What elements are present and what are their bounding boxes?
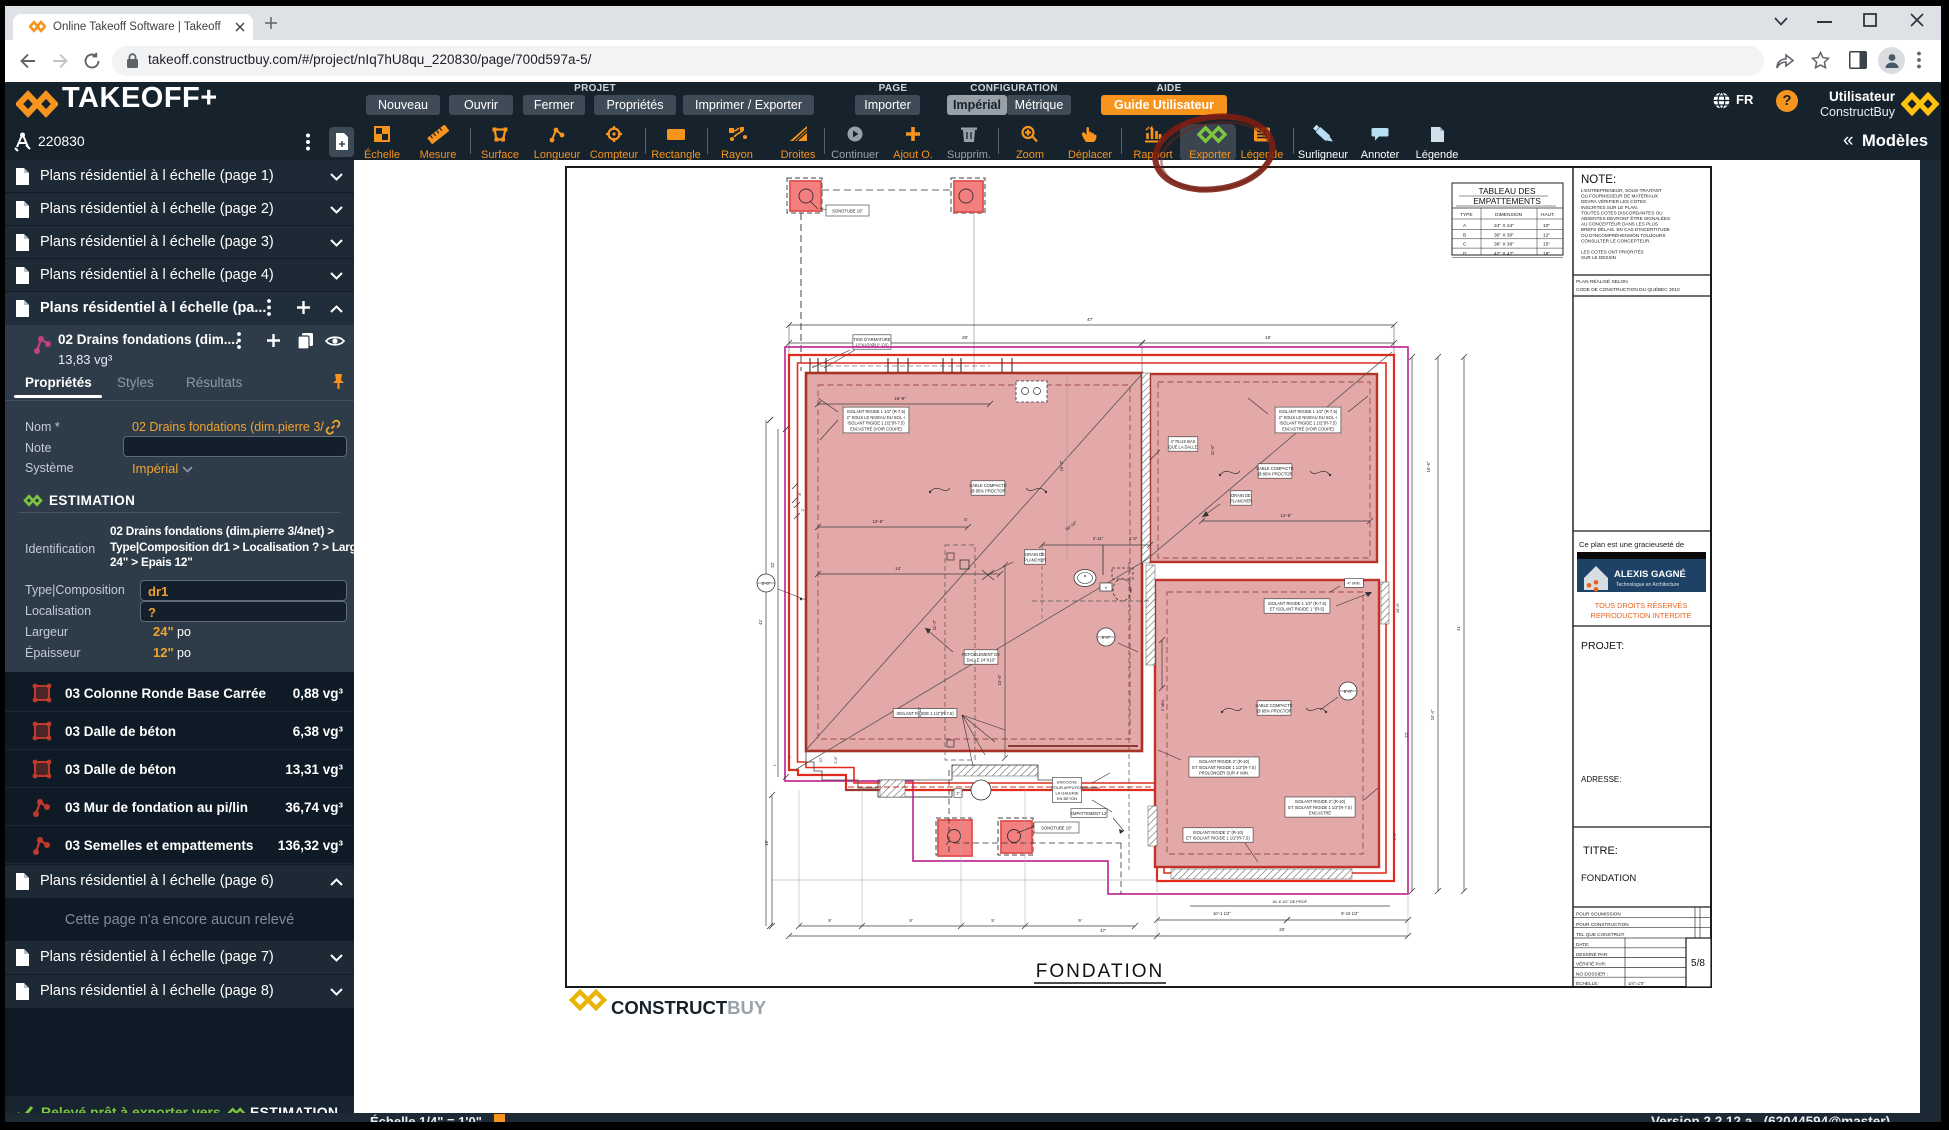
svg-text:13’-5": 13’-5" xyxy=(872,519,884,524)
svg-text:30" X 30": 30" X 30" xyxy=(1494,232,1514,238)
svg-text:5’-0": 5’-0" xyxy=(1344,689,1353,694)
svg-text:TOUS DROITS RÉSERVÉS: TOUS DROITS RÉSERVÉS xyxy=(1595,601,1688,610)
svg-text:ET ISOLANT RIGIDE 1 1/2"(R-7.5: ET ISOLANT RIGIDE 1 1/2"(R-7.5) xyxy=(1288,805,1352,810)
svg-text:10’-1 1/2": 10’-1 1/2" xyxy=(1213,911,1231,916)
svg-text:2' MIN.: 2' MIN. xyxy=(1160,699,1165,712)
svg-text:LES COTES ONT PRIORITÉS: LES COTES ONT PRIORITÉS xyxy=(1581,249,1644,255)
svg-text:VÉRIFIÉ PAR:: VÉRIFIÉ PAR: xyxy=(1576,961,1606,967)
svg-text:@ 95% PROCTOR: @ 95% PROCTOR xyxy=(1257,472,1292,477)
svg-text:16’-9": 16’-9" xyxy=(894,396,906,401)
svg-text:DATE:: DATE: xyxy=(1576,942,1589,947)
svg-text:36" X 36": 36" X 36" xyxy=(1494,242,1514,248)
svg-text:TOUTES COTES DISCORDANTES OU: TOUTES COTES DISCORDANTES OU xyxy=(1581,210,1663,215)
svg-text:LA GALERIE: LA GALERIE xyxy=(1055,791,1078,796)
svg-text:18": 18" xyxy=(1543,251,1550,257)
svg-text:ISOLANT RIGIDE 1 1/2" (R-7.5): ISOLANT RIGIDE 1 1/2" (R-7.5) xyxy=(1268,601,1327,606)
svg-text:CODE DE CONSTRUCTION DU QUÉBEC: CODE DE CONSTRUCTION DU QUÉBEC 2010 xyxy=(1576,286,1680,293)
svg-text:41': 41' xyxy=(1456,625,1461,631)
svg-text:D: D xyxy=(1463,251,1467,257)
svg-text:19': 19' xyxy=(1265,335,1271,340)
svg-text:28’-6": 28’-6" xyxy=(1395,602,1400,613)
svg-text:ISOLANT RIGIDE 1 1/2"(R-7.5): ISOLANT RIGIDE 1 1/2"(R-7.5) xyxy=(896,711,954,716)
svg-text:EMPATTEMENTS: EMPATTEMENTS xyxy=(1473,196,1541,206)
svg-text:15’-6": 15’-6" xyxy=(997,674,1002,685)
svg-text:ENCOCHE: ENCOCHE xyxy=(1057,779,1077,784)
svg-text:ISOLANT RIGIDE 1 1/2" (R-7.5): ISOLANT RIGIDE 1 1/2" (R-7.5) xyxy=(847,409,906,414)
svg-text:ABSENTES DEVRONT ÊTRE SIGNALÉE: ABSENTES DEVRONT ÊTRE SIGNALÉES xyxy=(1581,214,1670,221)
svg-text:SABLE COMPACTÉ: SABLE COMPACTÉ xyxy=(1255,703,1293,708)
svg-text:DALLE 24"X10": DALLE 24"X10" xyxy=(967,658,996,663)
svg-text:EN BÉTON: EN BÉTON xyxy=(1057,796,1077,801)
svg-text:2’-4": 2’-4" xyxy=(1392,831,1397,839)
svg-text:ISOLANT RIGIDE 2" (R-10): ISOLANT RIGIDE 2" (R-10) xyxy=(1193,830,1244,835)
svg-text:ENCASTRÉ: ENCASTRÉ xyxy=(1309,811,1332,816)
svg-text:4" MIN.: 4" MIN. xyxy=(1347,581,1360,586)
svg-text:14': 14' xyxy=(895,566,901,571)
svg-text:PLANCHER: PLANCHER xyxy=(1230,499,1252,504)
svg-text:16': 16' xyxy=(764,840,769,846)
svg-text:5’-0": 5’-0" xyxy=(1102,635,1111,640)
svg-text:POUR CONSTRUCTION: POUR CONSTRUCTION xyxy=(1576,922,1629,927)
svg-text:TITRE:: TITRE: xyxy=(1583,845,1618,857)
svg-text:OU FOURNISSEUR DE MATÉRIAUX: OU FOURNISSEUR DE MATÉRIAUX xyxy=(1581,193,1658,199)
svg-text:5': 5' xyxy=(991,918,994,923)
svg-text:EMPATTEMENT 12": EMPATTEMENT 12" xyxy=(1070,811,1108,816)
svg-text:9’-10 1/2": 9’-10 1/2" xyxy=(1341,911,1359,916)
svg-text:47': 47' xyxy=(1087,317,1093,322)
svg-text:16’-6": 16’-6" xyxy=(1426,461,1431,472)
svg-text:@ 95% PROCTOR: @ 95% PROCTOR xyxy=(970,489,1005,494)
svg-text:16’-6 1/2" DE PROF.: 16’-6 1/2" DE PROF. xyxy=(1272,899,1308,904)
svg-text:5’-11": 5’-11" xyxy=(917,706,922,717)
svg-text:ET ISOLANT RIGIDE 1 "(R-5): ET ISOLANT RIGIDE 1 "(R-5) xyxy=(1270,607,1325,612)
svg-text:32': 32' xyxy=(770,562,775,568)
svg-text:2': 2' xyxy=(800,508,805,511)
svg-text:NOTE:: NOTE: xyxy=(1581,174,1616,186)
svg-text:14’-9": 14’-9" xyxy=(1280,513,1292,518)
svg-text:ET ISOLANT RIGIDE 1 1/2"(R-7.5: ET ISOLANT RIGIDE 1 1/2"(R-7.5) xyxy=(1192,765,1256,770)
svg-text:1': 1' xyxy=(773,763,777,766)
svg-text:ISOLANT RIGIDE 2" (R-10): ISOLANT RIGIDE 2" (R-10) xyxy=(1199,759,1250,764)
svg-text:SONOTUBE 10": SONOTUBE 10" xyxy=(1041,826,1072,831)
svg-text:2’-11": 2’-11" xyxy=(1093,536,1104,541)
svg-text:2" SOUS LE NIVEAU DU SOL +: 2" SOUS LE NIVEAU DU SOL + xyxy=(847,415,906,420)
svg-text:DRAIN DE: DRAIN DE xyxy=(1231,493,1251,498)
svg-text:V: V xyxy=(1105,585,1108,590)
svg-text:ISOLANT RIGIDE 2" (R-10): ISOLANT RIGIDE 2" (R-10) xyxy=(1295,799,1346,804)
svg-text:2" SOUS LE NIVEAU DU SOL +: 2" SOUS LE NIVEAU DU SOL + xyxy=(1279,415,1338,420)
svg-text:POUR APPUYER: POUR APPUYER xyxy=(1051,785,1083,790)
svg-text:POUR SOUMISSION: POUR SOUMISSION xyxy=(1576,912,1621,917)
svg-text:9': 9' xyxy=(1078,918,1081,923)
svg-text:12": 12" xyxy=(1543,232,1550,238)
svg-text:47': 47' xyxy=(1100,928,1106,933)
svg-text:HAUT.: HAUT. xyxy=(1541,212,1555,218)
svg-text:@ 95% PROCTOR: @ 95% PROCTOR xyxy=(1256,709,1291,714)
svg-text:ISOLANT RIGIDE 1 1/2"(R-7.5): ISOLANT RIGIDE 1 1/2"(R-7.5) xyxy=(847,421,905,426)
svg-text:2'-6": 2'-6" xyxy=(834,756,838,764)
svg-text:PROLONGER SUR 4’ MIN.: PROLONGER SUR 4’ MIN. xyxy=(1199,771,1249,776)
svg-text:5’-0": 5’-0" xyxy=(762,581,771,586)
svg-text:ENCASTRÉ (VOIR COUPE): ENCASTRÉ (VOIR COUPE) xyxy=(1282,426,1334,431)
svg-text:41': 41' xyxy=(758,619,763,625)
svg-text:ADRESSE:: ADRESSE: xyxy=(1581,775,1621,784)
svg-text:DESSINÉ PAR:: DESSINÉ PAR: xyxy=(1576,951,1608,957)
svg-text:ENCASTRÉ (VOIR COUPE): ENCASTRÉ (VOIR COUPE) xyxy=(850,426,902,431)
svg-text:SONOTUBE 10": SONOTUBE 10" xyxy=(832,209,863,214)
svg-text:11’-6": 11’-6" xyxy=(1210,444,1215,455)
svg-text:CONSULTER LE CONCEPTEUR.: CONSULTER LE CONCEPTEUR. xyxy=(1581,238,1651,243)
svg-text:DEVRA VÉRIFIER LES COTES: DEVRA VÉRIFIER LES COTES xyxy=(1581,198,1646,204)
svg-text:ET ISOLANT RIGIDE 1 1/2"(R-7.5: ET ISOLANT RIGIDE 1 1/2"(R-7.5) xyxy=(1186,836,1250,841)
svg-text:TEL QUE CONSTRUIT: TEL QUE CONSTRUIT xyxy=(1576,932,1625,937)
svg-text:22': 22' xyxy=(1404,732,1409,738)
svg-text:SABLE COMPACTÉ: SABLE COMPACTÉ xyxy=(969,483,1007,488)
svg-text:ALEXIS GAGNÉ: ALEXIS GAGNÉ xyxy=(1614,569,1686,580)
svg-text:Ce plan est une gracieuseté de: Ce plan est une gracieuseté de xyxy=(1579,540,1684,549)
svg-text:FONDATION: FONDATION xyxy=(1036,961,1164,982)
svg-text:SABLE COMPACTÉ: SABLE COMPACTÉ xyxy=(1256,466,1294,471)
svg-text:24’-4": 24’-4" xyxy=(1430,709,1435,720)
svg-text:ÉCHELLE:: ÉCHELLE: xyxy=(1576,980,1599,986)
svg-text:BREFS DÉLAIS. EN CAS D'INCERTI: BREFS DÉLAIS. EN CAS D'INCERTITUDE xyxy=(1581,226,1670,232)
svg-text:10": 10" xyxy=(1543,223,1550,229)
svg-text:Technologue en Architecture: Technologue en Architecture xyxy=(1616,582,1679,588)
svg-text:5': 5' xyxy=(964,517,967,522)
svg-text:PROJET:: PROJET: xyxy=(1581,640,1624,652)
svg-text:42" X 42": 42" X 42" xyxy=(1494,251,1514,257)
svg-text:3": 3" xyxy=(956,791,960,796)
svg-text:FONDATION: FONDATION xyxy=(1581,873,1636,884)
svg-text:L'ENTREPRENEUR, SOUS-TRAITANT: L'ENTREPRENEUR, SOUS-TRAITANT xyxy=(1581,188,1662,193)
svg-text:PLAN RÉALISÉ SELON: PLAN RÉALISÉ SELON xyxy=(1576,278,1628,285)
svg-text:ISOLANT RIGIDE 1 1/2" (R-7.5): ISOLANT RIGIDE 1 1/2" (R-7.5) xyxy=(1279,409,1338,414)
svg-text:C: C xyxy=(1463,242,1467,248)
svg-text:11’-2": 11’-2" xyxy=(932,619,937,630)
svg-text:20': 20' xyxy=(1279,927,1285,932)
svg-text:REFOULEMENT DE: REFOULEMENT DE xyxy=(962,652,1000,657)
svg-text:B: B xyxy=(1463,232,1466,238)
svg-text:5/8: 5/8 xyxy=(1691,958,1705,969)
svg-text:CONSTRUCTBUY: CONSTRUCTBUY xyxy=(611,997,767,1018)
svg-text:8': 8' xyxy=(797,492,802,495)
svg-text:8': 8' xyxy=(909,918,912,923)
svg-text:2’-3": 2’-3" xyxy=(1129,536,1138,541)
svg-text:TYPE: TYPE xyxy=(1460,212,1473,218)
svg-text:4" PLUS BAS: 4" PLUS BAS xyxy=(1171,439,1196,444)
svg-text:AU CONCEPTEUR DANS LES PLUS: AU CONCEPTEUR DANS LES PLUS xyxy=(1581,222,1658,227)
svg-text:QUE LA DALLE: QUE LA DALLE xyxy=(1169,445,1198,450)
svg-text:10": 10" xyxy=(819,757,823,763)
svg-text:OU D'INCOMPRÉHENSION TOUJOURS: OU D'INCOMPRÉHENSION TOUJOURS xyxy=(1581,232,1665,238)
svg-text:16’-2": 16’-2" xyxy=(1059,460,1064,471)
svg-text:TABLEAU DES: TABLEAU DES xyxy=(1478,186,1536,196)
svg-text:15": 15" xyxy=(1543,242,1550,248)
svg-text:28': 28' xyxy=(962,335,968,340)
svg-text:ISOLANT RIGIDE 1 1/2"(R-7.5): ISOLANT RIGIDE 1 1/2"(R-7.5) xyxy=(1279,421,1337,426)
svg-text:PLANCHER: PLANCHER xyxy=(1024,558,1046,563)
svg-text:REPRODUCTION INTERDITE: REPRODUCTION INTERDITE xyxy=(1590,611,1691,620)
svg-text:DIMENSION: DIMENSION xyxy=(1495,212,1523,218)
svg-text:1': 1' xyxy=(789,756,792,760)
svg-text:NO DOSSIER :: NO DOSSIER : xyxy=(1576,971,1608,976)
svg-text:INSCRITES SUR LE PLAN.: INSCRITES SUR LE PLAN. xyxy=(1581,205,1638,210)
svg-text:1/4"=1'0": 1/4"=1'0" xyxy=(1628,981,1645,986)
svg-text:5': 5' xyxy=(828,918,831,923)
svg-text:24" X 24": 24" X 24" xyxy=(1494,223,1514,229)
svg-text:TIGE D’ARMATURE: TIGE D’ARMATURE xyxy=(853,337,890,342)
svg-text:SUR LE DESSIN: SUR LE DESSIN xyxy=(1581,255,1616,260)
